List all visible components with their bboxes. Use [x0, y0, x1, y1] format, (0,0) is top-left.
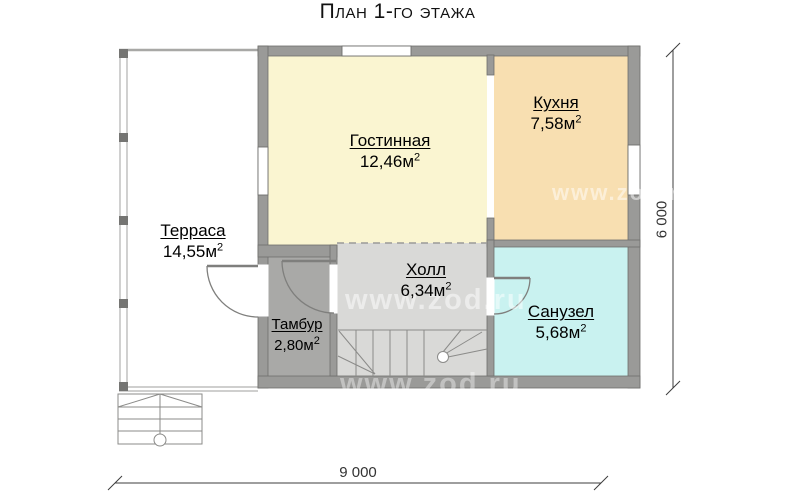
left-window — [258, 147, 268, 195]
tambour-top-wall — [258, 245, 337, 257]
kitchen-floor — [494, 55, 628, 240]
terrace-post — [119, 133, 128, 142]
right-window — [628, 145, 640, 195]
terrace-post — [119, 216, 128, 225]
room-label-tambour: Тамбур 2,80м2 — [272, 316, 323, 356]
floor-plan-drawing — [0, 0, 795, 496]
top-window — [342, 46, 411, 56]
room-label-hall: Холл 6,34м2 — [401, 259, 452, 302]
room-area: 6,34м2 — [401, 280, 452, 301]
terrace-post — [119, 382, 128, 391]
vertical-dimension-label: 6 000 — [654, 190, 671, 250]
porch-post — [154, 434, 166, 446]
room-name: Терраса — [160, 220, 225, 241]
top-exterior-wall — [258, 46, 640, 56]
floor-plan-page: www.zod.ru www.zod.ru www.zod.ru План 1-… — [0, 0, 795, 496]
left-exterior-wall — [258, 46, 268, 388]
room-label-living: Гостинная 12,46м2 — [350, 130, 431, 173]
room-label-terrace: Терраса 14,55м2 — [160, 220, 225, 263]
terrace-post — [119, 299, 128, 308]
room-name: Санузел — [528, 301, 594, 322]
room-name: Холл — [401, 259, 452, 280]
kitchen-bathroom-wall — [487, 240, 640, 247]
room-area: 7,58м2 — [531, 113, 582, 134]
room-area: 14,55м2 — [160, 241, 225, 262]
room-name: Гостинная — [350, 130, 431, 151]
room-label-bathroom: Санузел 5,68м2 — [528, 301, 594, 344]
bottom-exterior-wall — [258, 376, 640, 388]
right-exterior-wall — [628, 46, 640, 388]
horizontal-dimension-label: 9 000 — [328, 464, 388, 481]
room-area: 12,46м2 — [350, 151, 431, 172]
entrance-door — [207, 266, 258, 317]
stair-post — [438, 352, 449, 363]
porch-steps — [118, 394, 202, 446]
room-name: Тамбур — [272, 316, 323, 335]
terrace-post — [119, 49, 128, 58]
room-area: 5,68м2 — [528, 322, 594, 343]
room-area: 2,80м2 — [272, 335, 323, 356]
living-kitchen-partition-top — [487, 55, 494, 75]
page-title: План 1-го этажа — [0, 0, 795, 24]
room-name: Кухня — [531, 92, 582, 113]
room-label-kitchen: Кухня 7,58м2 — [531, 92, 582, 135]
